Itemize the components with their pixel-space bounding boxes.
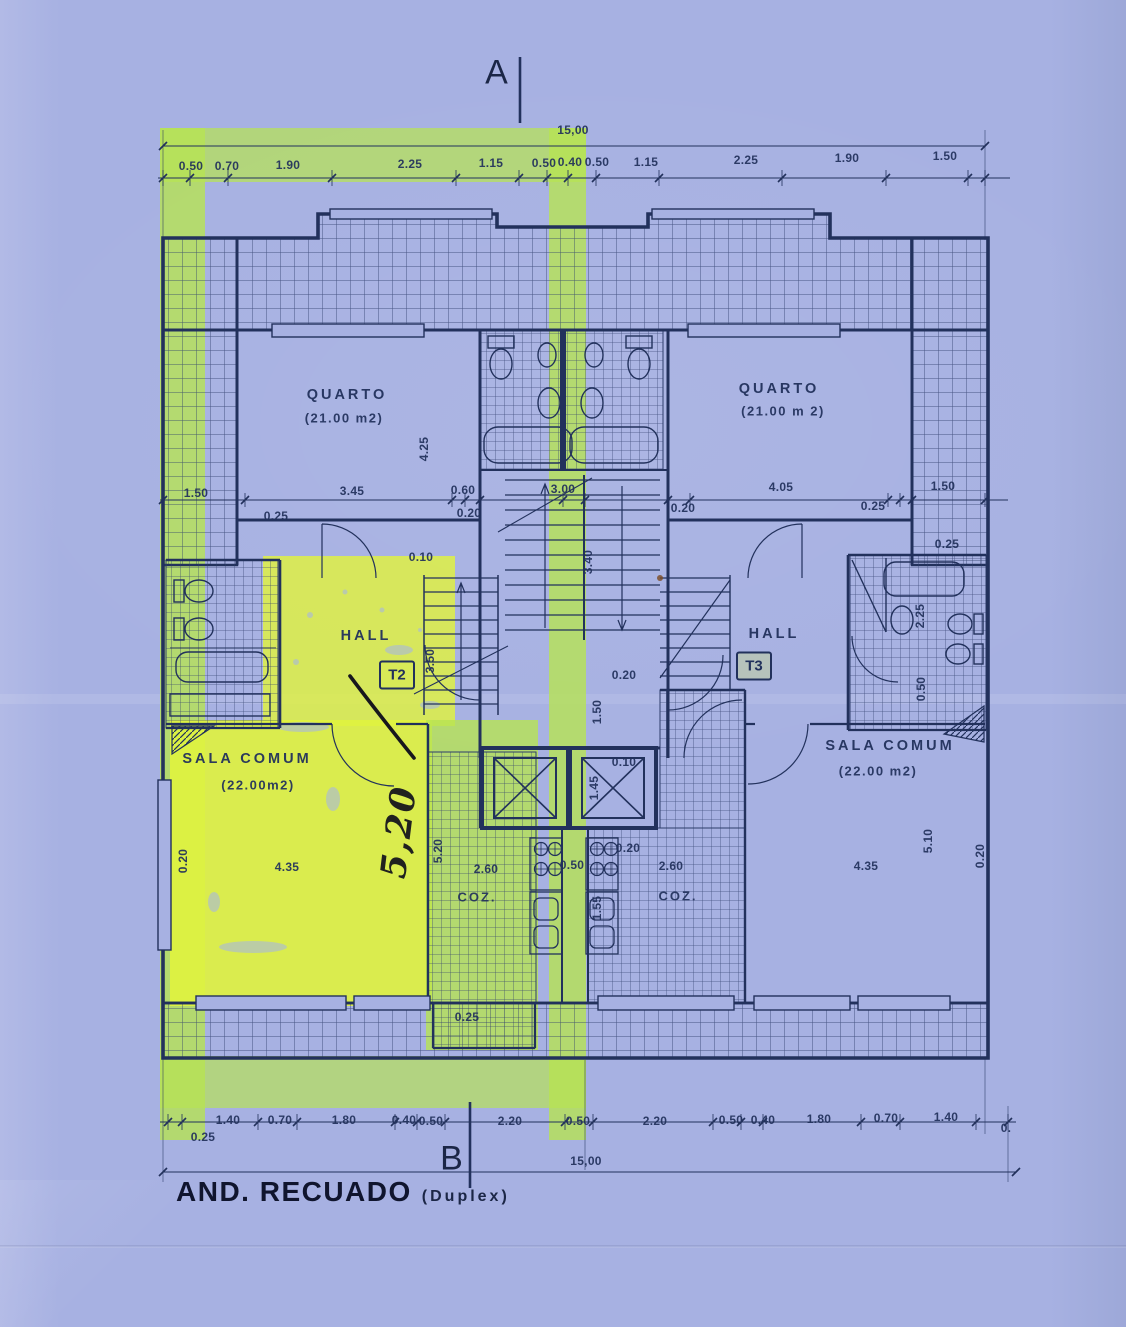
section-marker-b: B [440, 1140, 464, 1179]
scanned-floor-plan-page: 15,000.500.701.902.251.150.500.400.501.1… [0, 0, 1126, 1327]
unit-tag-t2: T2 [379, 661, 415, 690]
unit-tag-t3: T3 [736, 652, 772, 681]
drawing-title-text: AND. RECUADO [176, 1176, 412, 1207]
floor-plan-drawing [0, 0, 1126, 1327]
paper-speck [657, 575, 663, 581]
drawing-subtitle: (Duplex) [422, 1188, 510, 1205]
drawing-title: AND. RECUADO(Duplex) [176, 1176, 510, 1208]
section-marker-a: A [485, 54, 509, 93]
